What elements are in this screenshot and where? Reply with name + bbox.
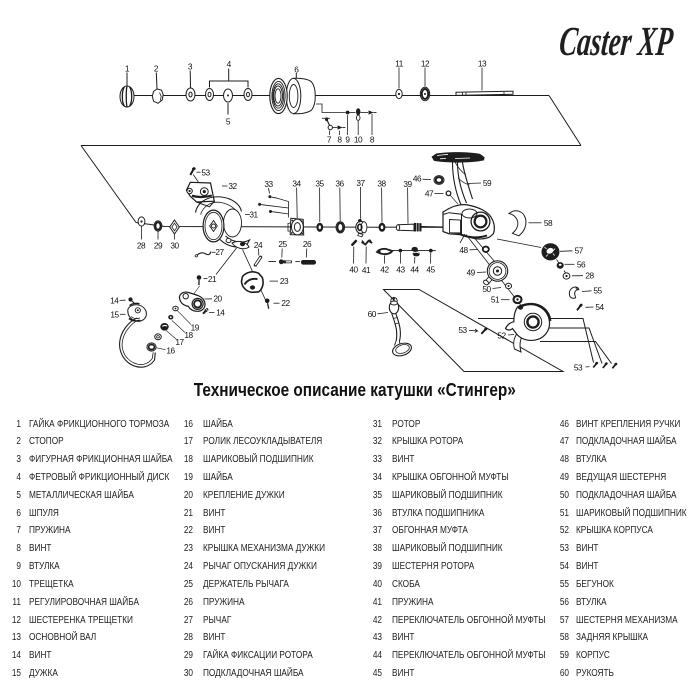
svg-text:1: 1 [125, 64, 130, 74]
svg-text:25: 25 [278, 239, 287, 249]
svg-text:60: 60 [368, 309, 377, 319]
svg-text:24: 24 [254, 240, 263, 250]
svg-text:26: 26 [303, 239, 312, 249]
svg-text:17: 17 [175, 337, 184, 347]
svg-text:10: 10 [354, 135, 363, 145]
svg-text:38: 38 [377, 179, 386, 189]
svg-text:47: 47 [425, 189, 434, 199]
svg-text:7: 7 [327, 135, 332, 145]
svg-text:13: 13 [478, 59, 487, 69]
svg-text:16: 16 [166, 346, 175, 356]
svg-text:8: 8 [337, 135, 342, 145]
svg-text:6: 6 [294, 65, 299, 75]
svg-text:49: 49 [467, 268, 476, 278]
svg-text:18: 18 [184, 330, 193, 340]
svg-text:9: 9 [345, 135, 350, 145]
svg-text:23: 23 [280, 276, 289, 286]
svg-text:14: 14 [216, 308, 225, 318]
svg-text:36: 36 [335, 179, 344, 189]
svg-text:51: 51 [491, 295, 500, 305]
svg-text:2: 2 [154, 64, 159, 74]
svg-text:30: 30 [170, 241, 179, 251]
svg-text:45: 45 [426, 265, 435, 275]
svg-text:41: 41 [362, 265, 371, 275]
svg-text:8: 8 [370, 135, 375, 145]
svg-text:39: 39 [403, 179, 412, 189]
svg-text:28: 28 [137, 241, 146, 251]
svg-text:15: 15 [110, 309, 119, 319]
svg-text:21: 21 [208, 274, 217, 284]
svg-text:11: 11 [395, 59, 404, 69]
svg-text:5: 5 [226, 117, 231, 127]
svg-text:37: 37 [356, 178, 365, 188]
svg-text:22: 22 [281, 298, 290, 308]
svg-text:42: 42 [380, 265, 389, 275]
svg-text:43: 43 [396, 265, 405, 275]
svg-text:4: 4 [227, 59, 232, 69]
svg-text:29: 29 [154, 241, 163, 251]
svg-text:40: 40 [349, 265, 358, 275]
svg-text:12: 12 [421, 59, 430, 69]
svg-text:54: 54 [595, 302, 604, 312]
svg-text:35: 35 [315, 179, 324, 189]
svg-text:52: 52 [497, 330, 506, 340]
svg-text:48: 48 [459, 245, 468, 255]
svg-text:53: 53 [574, 363, 583, 373]
svg-text:53: 53 [201, 168, 210, 178]
svg-text:50: 50 [482, 284, 491, 294]
svg-text:28: 28 [585, 271, 594, 281]
svg-text:53: 53 [458, 325, 467, 335]
svg-text:32: 32 [228, 181, 237, 191]
svg-text:33: 33 [264, 179, 273, 189]
svg-text:44: 44 [410, 265, 419, 275]
svg-text:55: 55 [593, 285, 602, 295]
svg-text:31: 31 [249, 210, 258, 220]
svg-text:20: 20 [213, 294, 222, 304]
svg-text:27: 27 [215, 247, 224, 257]
svg-text:57: 57 [575, 245, 584, 255]
svg-text:46: 46 [413, 174, 422, 184]
svg-text:14: 14 [110, 295, 119, 305]
svg-text:59: 59 [483, 178, 492, 188]
svg-text:58: 58 [544, 218, 553, 228]
svg-text:56: 56 [577, 259, 586, 269]
svg-text:3: 3 [188, 62, 193, 72]
svg-text:34: 34 [292, 179, 301, 189]
